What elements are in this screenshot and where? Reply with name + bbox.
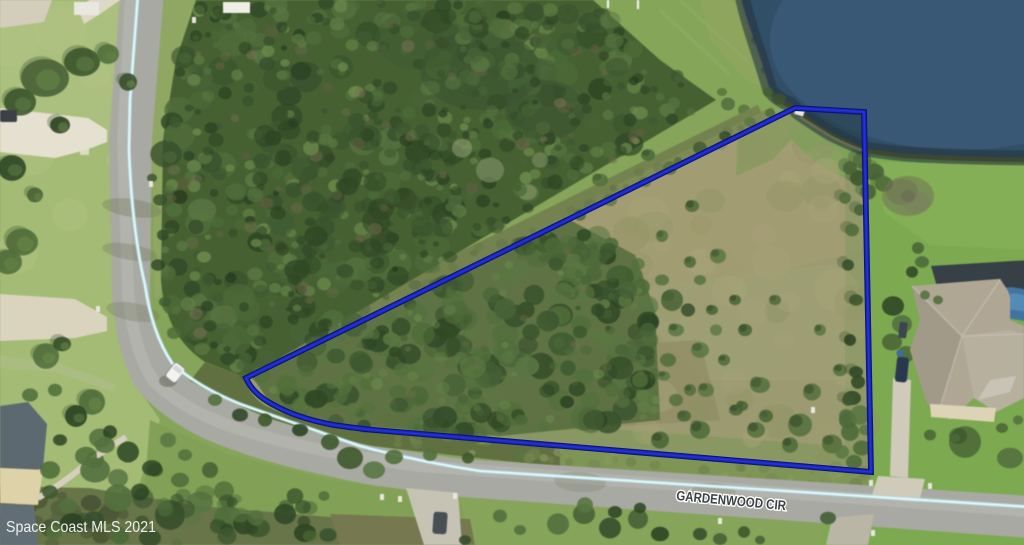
svg-text:Space Coast MLS 2021: Space Coast MLS 2021 bbox=[6, 519, 156, 536]
